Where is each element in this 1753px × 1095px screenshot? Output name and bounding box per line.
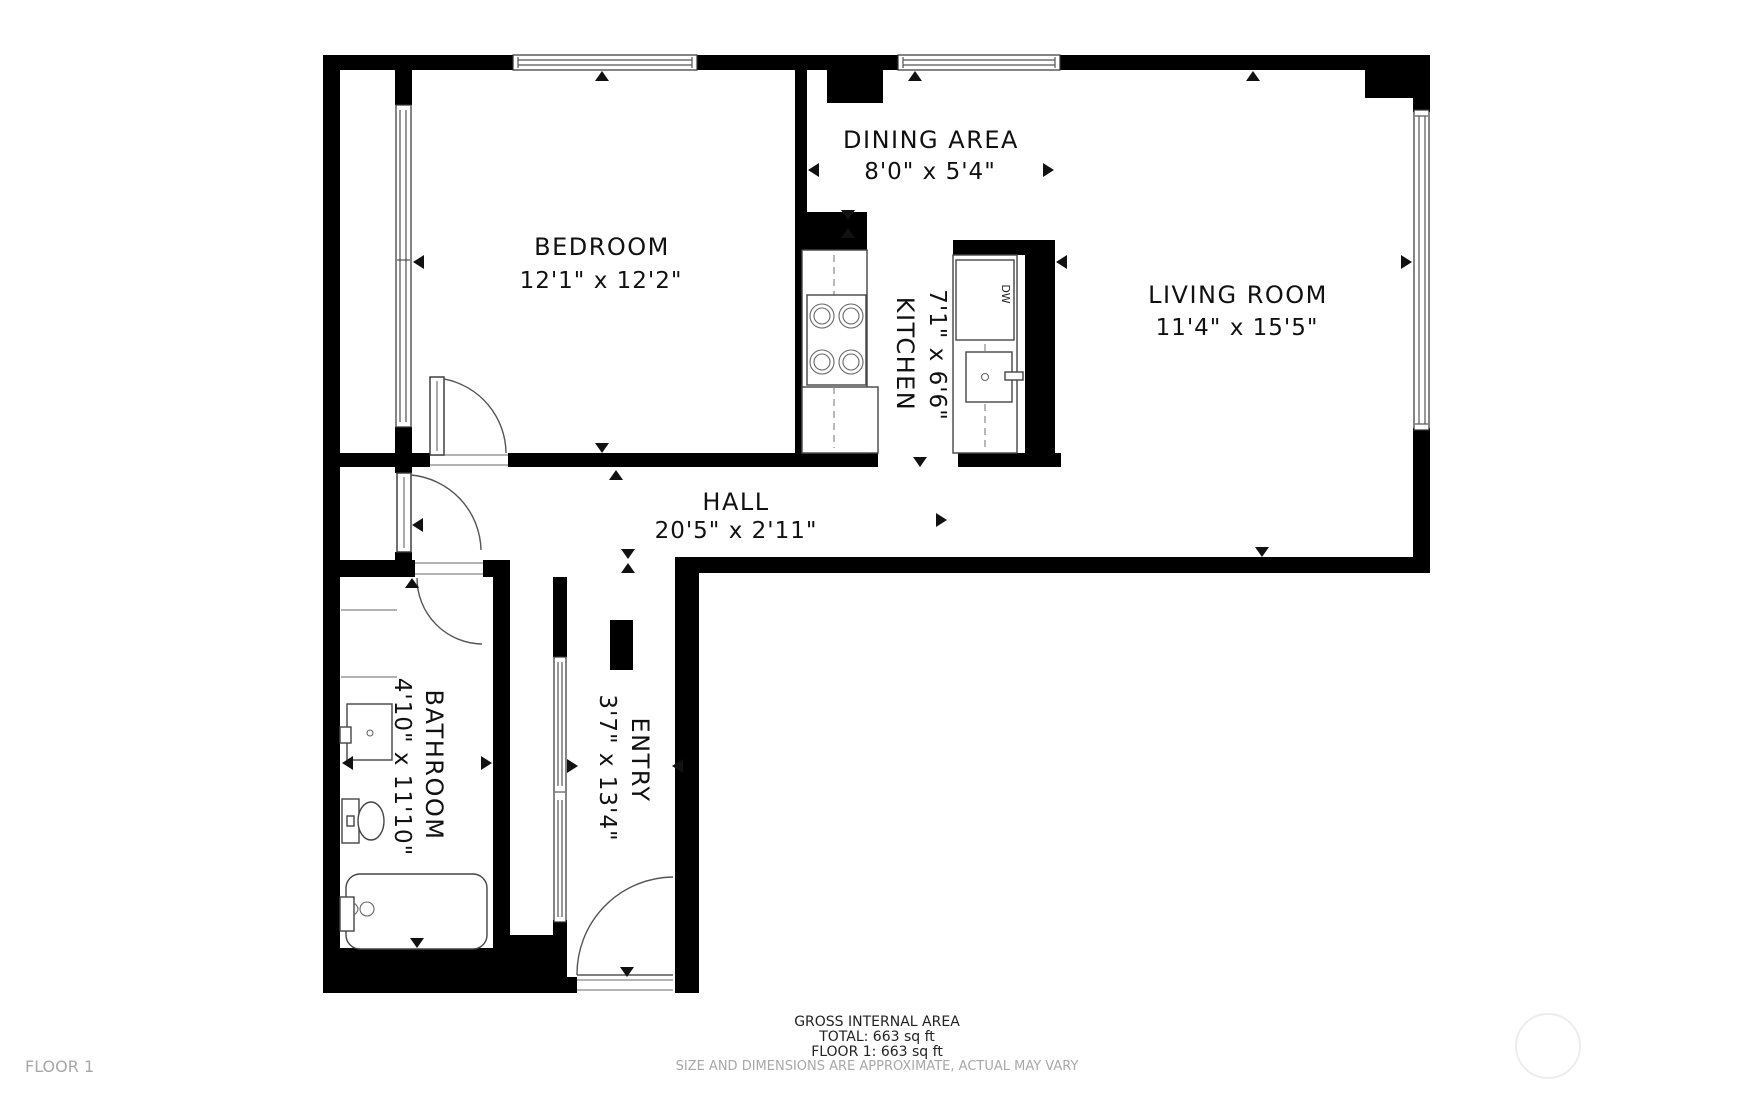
dimension-arrow-icon: [595, 443, 609, 453]
floor-plan-page: BEDROOM 12'1" x 12'2" DINING AREA 8'0" x…: [0, 0, 1753, 1095]
bedroom-top-window-icon: [513, 55, 697, 70]
dimension-arrow-icon: [412, 518, 423, 532]
walls: [323, 55, 1430, 993]
dimension-arrow-icon: [1056, 255, 1067, 269]
dimension-arrow-icon: [1401, 255, 1412, 269]
bathroom-dimensions: 4'10" x 11'10": [389, 678, 415, 856]
windows: [396, 55, 1429, 922]
kitchen-label: KITCHEN: [891, 297, 919, 412]
dishwasher-label: DW: [999, 284, 1012, 303]
dimension-arrow-icon: [609, 470, 623, 480]
toilet-icon: [342, 799, 384, 843]
dimension-arrow-icon: [413, 255, 424, 269]
entry-partition-window-icon: [554, 657, 566, 922]
dimension-arrow-icon: [595, 71, 609, 81]
bathroom-label: BATHROOM: [420, 690, 448, 841]
dimension-arrow-icon: [567, 759, 578, 773]
dimension-arrow-icon: [936, 513, 947, 527]
living-room-window-icon: [1414, 110, 1429, 430]
dimension-arrow-icon: [908, 71, 922, 81]
dimension-arrow-icon: [808, 163, 819, 177]
dining-top-window-icon: [898, 55, 1060, 70]
dining-area-dimensions: 8'0" x 5'4": [864, 159, 996, 185]
dining-area-label: DINING AREA: [843, 126, 1019, 154]
dimension-arrow-icon: [1043, 163, 1054, 177]
stove-icon: [807, 295, 866, 385]
entry-door-icon: [577, 877, 673, 993]
bedroom-door-icon: [430, 377, 508, 467]
bedroom-dimensions: 12'1" x 12'2": [520, 268, 683, 294]
floor-total-value: FLOOR 1: 663 sq ft: [811, 1044, 943, 1060]
dimension-arrow-icon: [481, 756, 492, 770]
living-room-dimensions: 11'4" x 15'5": [1156, 315, 1319, 341]
kitchen-dimensions: 7'1" x 6'6": [924, 289, 950, 421]
bathroom-door-icon: [415, 560, 483, 644]
footer: GROSS INTERNAL AREA TOTAL: 663 sq ft FLO…: [25, 1014, 1580, 1078]
bedroom-label: BEDROOM: [534, 233, 670, 261]
entry-dimensions: 3'7" x 13'4": [594, 694, 620, 841]
hall-label: HALL: [702, 488, 769, 516]
living-room-label: LIVING ROOM: [1148, 281, 1328, 309]
watermark-circle-icon: [1516, 1014, 1580, 1078]
floor-plan-drawing: BEDROOM 12'1" x 12'2" DINING AREA 8'0" x…: [0, 0, 1753, 1095]
dimension-arrow-icon: [1246, 71, 1260, 81]
dimension-arrow-icon: [1255, 547, 1269, 557]
hall-closet-door-icon: [395, 473, 481, 552]
total-area-value: TOTAL: 663 sq ft: [818, 1029, 935, 1045]
disclaimer-text: SIZE AND DIMENSIONS ARE APPROXIMATE, ACT…: [676, 1059, 1079, 1074]
entry-label: ENTRY: [626, 717, 654, 802]
dimension-arrow-icon: [621, 549, 635, 559]
dimension-arrow-icon: [621, 563, 635, 573]
gross-internal-area-label: GROSS INTERNAL AREA: [794, 1014, 960, 1030]
floor-label: FLOOR 1: [25, 1057, 94, 1076]
dimension-arrow-icon: [913, 457, 927, 467]
vanity-sink-icon: [340, 610, 397, 760]
hall-dimensions: 20'5" x 2'11": [655, 518, 818, 544]
bathtub-icon: [340, 874, 487, 949]
faucet-icon: [1005, 372, 1023, 380]
bedroom-west-window-icon: [396, 105, 411, 427]
